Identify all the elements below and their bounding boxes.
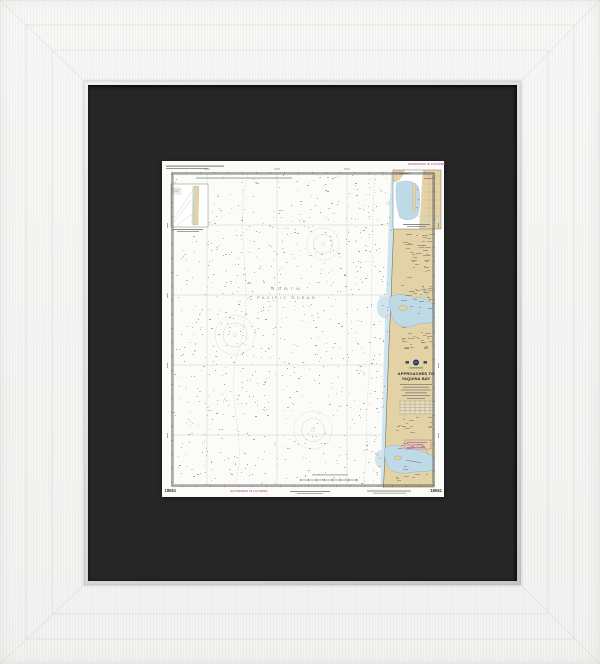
soundings-unit-note-bottom: SOUNDINGS IN FATHOMS xyxy=(228,491,270,494)
chart-paper: SOUNDINGS IN FATHOMS SOUNDINGS IN FATHOM… xyxy=(162,161,444,497)
source-diagram-inset xyxy=(171,184,208,227)
chart-graphic xyxy=(162,161,444,498)
compass-rose-north xyxy=(307,228,339,260)
compass-rose-south xyxy=(294,411,332,449)
compass-rose-west xyxy=(215,315,255,355)
ocean-label-line2: PACIFIC OCEAN xyxy=(227,296,347,300)
chart-number-bottom-right: 18561 xyxy=(420,489,442,493)
chart-number-bottom-left: 18561 xyxy=(165,489,177,493)
soundings-unit-note-top: SOUNDINGS IN FATHOMS xyxy=(408,164,441,167)
top-margin-text xyxy=(166,166,292,179)
depth-contours xyxy=(208,174,375,486)
framed-chart-photo: SOUNDINGS IN FATHOMS SOUNDINGS IN FATHOM… xyxy=(0,0,600,664)
soundings-table xyxy=(400,401,434,414)
inset-caption-text xyxy=(173,229,203,230)
title-block-small-text xyxy=(409,368,423,369)
mat-board: SOUNDINGS IN FATHOMS SOUNDINGS IN FATHOM… xyxy=(88,85,517,581)
ocean-label-line1: NORTH xyxy=(247,287,327,291)
chart-title-line2: YAQUINA BAY xyxy=(392,377,440,381)
